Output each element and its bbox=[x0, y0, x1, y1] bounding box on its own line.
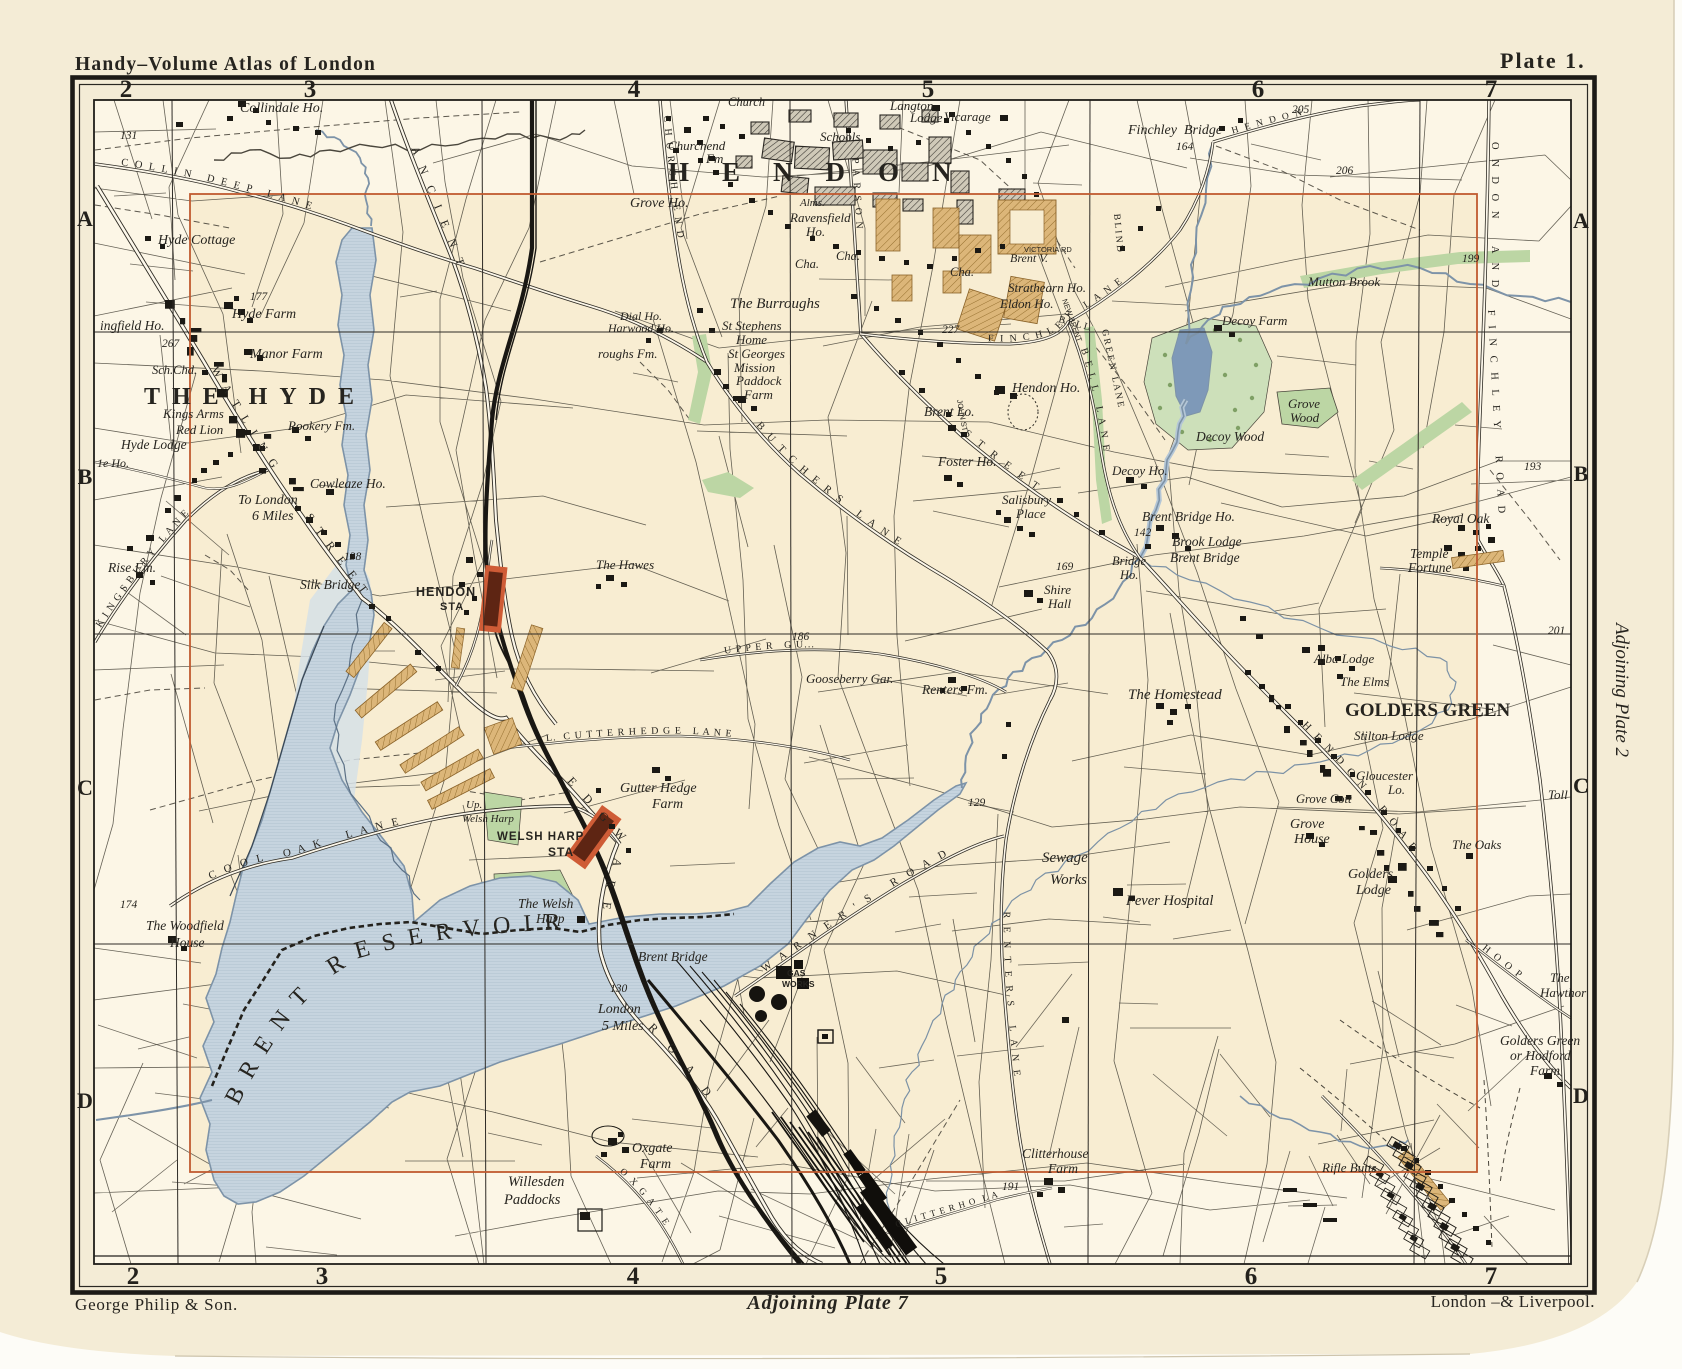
svg-text:George Philip & Son.: George Philip & Son. bbox=[75, 1295, 238, 1314]
svg-text:Vicarage: Vicarage bbox=[944, 109, 991, 124]
svg-text:Clitterhouse: Clitterhouse bbox=[1022, 1146, 1089, 1161]
svg-text:Grove Cott: Grove Cott bbox=[1296, 792, 1352, 806]
svg-text:6 Miles: 6 Miles bbox=[252, 509, 294, 524]
svg-text:Paddocks: Paddocks bbox=[503, 1192, 561, 1208]
svg-text:Ravensfield: Ravensfield bbox=[789, 210, 851, 225]
svg-text:Red Lion: Red Lion bbox=[175, 422, 223, 437]
svg-text:Kings Arms: Kings Arms bbox=[162, 406, 224, 421]
svg-text:164: 164 bbox=[1176, 141, 1194, 153]
svg-text:Paddock: Paddock bbox=[735, 373, 782, 388]
svg-text:Stilton Lodge: Stilton Lodge bbox=[1354, 728, 1424, 743]
svg-text:D: D bbox=[77, 1088, 93, 1113]
svg-text:Grove: Grove bbox=[1288, 396, 1320, 411]
svg-text:Fever Hospital: Fever Hospital bbox=[1125, 893, 1213, 909]
svg-text:Handy–Volume Atlas of London: Handy–Volume Atlas of London bbox=[75, 54, 376, 75]
svg-text:Lo.: Lo. bbox=[1387, 782, 1405, 797]
svg-text:Schools: Schools bbox=[820, 129, 860, 144]
svg-text:Cha.: Cha. bbox=[795, 257, 819, 271]
svg-text:VICTORIA RD: VICTORIA RD bbox=[1024, 245, 1072, 254]
svg-text:A: A bbox=[1573, 208, 1589, 233]
svg-text:C: C bbox=[77, 775, 93, 800]
svg-text:The Homestead: The Homestead bbox=[1128, 687, 1222, 703]
svg-text:Farm: Farm bbox=[651, 797, 683, 812]
svg-text:4: 4 bbox=[628, 76, 641, 103]
svg-text:Ho.: Ho. bbox=[1119, 568, 1138, 582]
svg-text:The: The bbox=[1550, 970, 1570, 985]
svg-text:Alba Lodge: Alba Lodge bbox=[1313, 651, 1375, 666]
svg-text:House: House bbox=[169, 935, 205, 950]
svg-text:Wood: Wood bbox=[1290, 410, 1320, 425]
svg-text:129: 129 bbox=[968, 797, 986, 809]
svg-text:Gooseberry Gar.: Gooseberry Gar. bbox=[806, 671, 893, 686]
svg-text:Salisbury: Salisbury bbox=[1002, 492, 1051, 507]
svg-text:Hyde Lodge: Hyde Lodge bbox=[120, 437, 187, 452]
svg-text:The Hawes: The Hawes bbox=[596, 557, 654, 572]
svg-text:7: 7 bbox=[1485, 76, 1498, 103]
svg-text:186: 186 bbox=[792, 631, 810, 643]
svg-text:Silk Bridge: Silk Bridge bbox=[300, 577, 360, 592]
svg-text:D: D bbox=[1573, 1083, 1589, 1108]
svg-text:Alms.: Alms. bbox=[799, 197, 825, 209]
svg-text:Farm: Farm bbox=[639, 1157, 671, 1172]
svg-text:174: 174 bbox=[120, 899, 138, 911]
svg-text:Brent Bridge: Brent Bridge bbox=[638, 949, 708, 964]
svg-text:Hyde Farm: Hyde Farm bbox=[231, 307, 296, 322]
svg-text:Eldon Ho.: Eldon Ho. bbox=[999, 296, 1053, 311]
svg-text:Strathearn Ho.: Strathearn Ho. bbox=[1008, 280, 1086, 295]
svg-text:191: 191 bbox=[1002, 1181, 1019, 1193]
svg-text:The Welsh: The Welsh bbox=[518, 896, 574, 911]
svg-text:Grove: Grove bbox=[1290, 817, 1324, 832]
svg-text:Cowleaze Ho.: Cowleaze Ho. bbox=[310, 476, 386, 491]
svg-text:4: 4 bbox=[627, 1263, 640, 1290]
svg-text:Harp: Harp bbox=[535, 911, 565, 926]
svg-text:ingfield Ho.: ingfield Ho. bbox=[100, 318, 165, 333]
svg-text:St Stephens: St Stephens bbox=[722, 318, 782, 333]
svg-text:House: House bbox=[1293, 832, 1330, 847]
svg-text:Grove Ho.: Grove Ho. bbox=[630, 196, 689, 211]
svg-text:Hendon Ho.: Hendon Ho. bbox=[1011, 381, 1080, 396]
svg-text:Cha.: Cha. bbox=[950, 265, 974, 279]
svg-text:Gloucester: Gloucester bbox=[1356, 768, 1414, 783]
svg-text:169: 169 bbox=[1056, 561, 1074, 573]
svg-text:201: 201 bbox=[1548, 625, 1565, 637]
svg-text:131: 131 bbox=[120, 130, 137, 142]
svg-text:Hall: Hall bbox=[1047, 596, 1072, 611]
svg-text:London –& Liverpool.: London –& Liverpool. bbox=[1431, 1292, 1595, 1311]
svg-text:6: 6 bbox=[1245, 1263, 1258, 1290]
svg-text:1e Ho.: 1e Ho. bbox=[97, 456, 129, 470]
svg-text:6: 6 bbox=[1252, 76, 1265, 103]
svg-text:Hyde Cottage: Hyde Cottage bbox=[157, 233, 235, 248]
svg-text:Willesden: Willesden bbox=[508, 1174, 564, 1190]
svg-text:267: 267 bbox=[162, 338, 181, 350]
svg-text:To London: To London bbox=[238, 493, 298, 508]
svg-text:Royal Oak: Royal Oak bbox=[1431, 511, 1490, 526]
svg-text:STA: STA bbox=[440, 601, 464, 613]
svg-text:Oxgate: Oxgate bbox=[632, 1141, 672, 1156]
svg-text:205: 205 bbox=[1292, 104, 1310, 116]
svg-text:Welsh Harp: Welsh Harp bbox=[462, 813, 514, 825]
svg-text:Sewage: Sewage bbox=[1042, 850, 1088, 866]
svg-text:5: 5 bbox=[935, 1263, 948, 1290]
svg-text:Finchley Bridge: Finchley Bridge bbox=[1127, 123, 1222, 138]
svg-text:Harwood Ho.: Harwood Ho. bbox=[607, 321, 674, 335]
svg-text:2: 2 bbox=[120, 76, 133, 103]
svg-text:Farm: Farm bbox=[743, 387, 773, 402]
svg-text:Gutter Hedge: Gutter Hedge bbox=[620, 781, 697, 796]
svg-text:Rookery Fm.: Rookery Fm. bbox=[287, 418, 355, 433]
svg-text:Adjoining Plate 7: Adjoining Plate 7 bbox=[745, 1292, 908, 1314]
svg-text:Decoy Ho.: Decoy Ho. bbox=[1111, 463, 1168, 478]
svg-text:STA: STA bbox=[548, 845, 574, 859]
svg-text:227: 227 bbox=[942, 324, 961, 336]
svg-text:Fm: Fm bbox=[705, 151, 723, 166]
svg-text:199: 199 bbox=[1462, 253, 1480, 265]
svg-text:Decoy Wood: Decoy Wood bbox=[1195, 429, 1264, 444]
svg-text:Golders: Golders bbox=[1348, 867, 1394, 882]
svg-text:Brook Lodge: Brook Lodge bbox=[1172, 534, 1242, 549]
svg-text:3: 3 bbox=[304, 76, 317, 103]
svg-text:Renters Fm.: Renters Fm. bbox=[921, 682, 988, 697]
svg-text:Place: Place bbox=[1015, 506, 1046, 521]
svg-text:O N D O N A N D: O N D O N A N D bbox=[1489, 142, 1500, 291]
svg-text:Golders Green: Golders Green bbox=[1500, 1033, 1580, 1048]
svg-text:WELSH HARP: WELSH HARP bbox=[497, 831, 584, 843]
svg-text:Mutton Brook: Mutton Brook bbox=[1307, 274, 1380, 289]
svg-text:London: London bbox=[597, 1002, 641, 1017]
svg-text:Hawthor: Hawthor bbox=[1539, 985, 1587, 1000]
svg-text:HENDON: HENDON bbox=[416, 585, 476, 599]
svg-text:Home: Home bbox=[735, 332, 767, 347]
svg-text:Rifle Butts: Rifle Butts bbox=[1321, 1160, 1377, 1175]
svg-text:GAS: GAS bbox=[787, 968, 806, 978]
svg-text:7: 7 bbox=[1485, 1263, 1498, 1290]
svg-text:3: 3 bbox=[316, 1263, 329, 1290]
svg-text:Collindale Ho.: Collindale Ho. bbox=[240, 101, 323, 116]
svg-text:Works: Works bbox=[1050, 872, 1087, 888]
svg-text:Plate 1.: Plate 1. bbox=[1500, 48, 1586, 73]
svg-text:Church: Church bbox=[728, 95, 765, 109]
svg-text:Shire: Shire bbox=[1044, 582, 1071, 597]
svg-text:130: 130 bbox=[610, 983, 628, 995]
svg-text:St Georges: St Georges bbox=[728, 346, 785, 361]
svg-text:The Woodfield: The Woodfield bbox=[146, 918, 224, 933]
svg-text:2: 2 bbox=[127, 1263, 140, 1290]
svg-text:Sch.Chd.: Sch.Chd. bbox=[152, 363, 197, 377]
svg-text:177: 177 bbox=[250, 291, 269, 303]
svg-text:193: 193 bbox=[1524, 461, 1542, 473]
svg-text:206: 206 bbox=[1336, 165, 1354, 177]
svg-text:roughs Fm.: roughs Fm. bbox=[598, 346, 657, 361]
svg-text:Foster Ho.: Foster Ho. bbox=[937, 454, 997, 469]
svg-text:A: A bbox=[77, 206, 93, 231]
svg-text:B: B bbox=[1574, 461, 1589, 486]
svg-text:5 Miles: 5 Miles bbox=[602, 1019, 644, 1034]
svg-text:Adjoining Plate 2: Adjoining Plate 2 bbox=[1611, 621, 1632, 758]
svg-text:or Hodford: or Hodford bbox=[1510, 1048, 1571, 1063]
svg-text:138: 138 bbox=[344, 551, 362, 563]
svg-text:Lodge: Lodge bbox=[909, 110, 943, 125]
svg-text:GOLDERS GREEN: GOLDERS GREEN bbox=[1345, 700, 1511, 721]
svg-text:Up.: Up. bbox=[466, 799, 482, 811]
svg-text:The Burroughs: The Burroughs bbox=[730, 296, 820, 312]
svg-text:Lodge: Lodge bbox=[1355, 883, 1391, 898]
svg-text:Toll: Toll bbox=[1548, 787, 1568, 802]
svg-text:The Oaks: The Oaks bbox=[1452, 837, 1501, 852]
svg-text:Temple: Temple bbox=[1410, 546, 1449, 561]
svg-text:Decoy Farm: Decoy Farm bbox=[1221, 313, 1287, 328]
svg-text:Farm: Farm bbox=[1529, 1063, 1560, 1078]
svg-text:Bridge: Bridge bbox=[1112, 554, 1146, 568]
svg-text:Ho.: Ho. bbox=[805, 224, 825, 239]
svg-text:Farm: Farm bbox=[1047, 1161, 1078, 1176]
svg-text:Brent Bridge Ho.: Brent Bridge Ho. bbox=[1142, 509, 1235, 524]
svg-text:Manor Farm: Manor Farm bbox=[249, 347, 323, 362]
svg-text:Brent Bridge: Brent Bridge bbox=[1170, 550, 1240, 565]
svg-text:C: C bbox=[1573, 773, 1589, 798]
svg-text:Rise Fm.: Rise Fm. bbox=[107, 560, 156, 575]
svg-text:The Elms: The Elms bbox=[1340, 674, 1389, 689]
svg-text:Fortune: Fortune bbox=[1407, 560, 1452, 575]
svg-text:Cha.: Cha. bbox=[836, 249, 860, 263]
svg-text:WORKS: WORKS bbox=[782, 979, 815, 989]
svg-text:142: 142 bbox=[1134, 527, 1152, 539]
svg-text:B: B bbox=[78, 464, 93, 489]
